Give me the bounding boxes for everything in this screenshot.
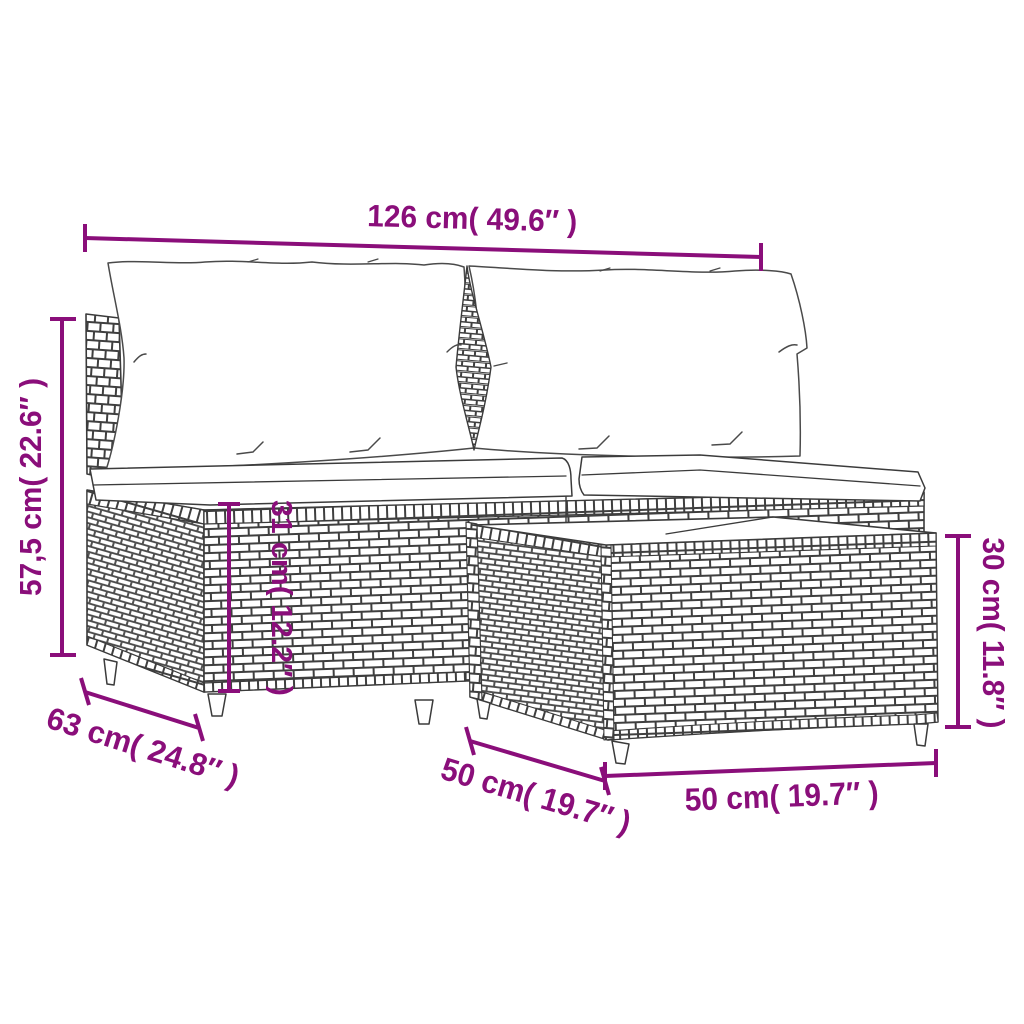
svg-text:57,5 cm( 22.6″ ): 57,5 cm( 22.6″ ) <box>13 378 48 596</box>
svg-text:126 cm( 49.6″ ): 126 cm( 49.6″ ) <box>367 198 578 239</box>
svg-text:50 cm( 19.7″ ): 50 cm( 19.7″ ) <box>684 774 879 817</box>
svg-text:30 cm( 11.8″ ): 30 cm( 11.8″ ) <box>976 538 1011 729</box>
svg-text:31 cm( 12.2″ ): 31 cm( 12.2″ ) <box>265 500 297 696</box>
